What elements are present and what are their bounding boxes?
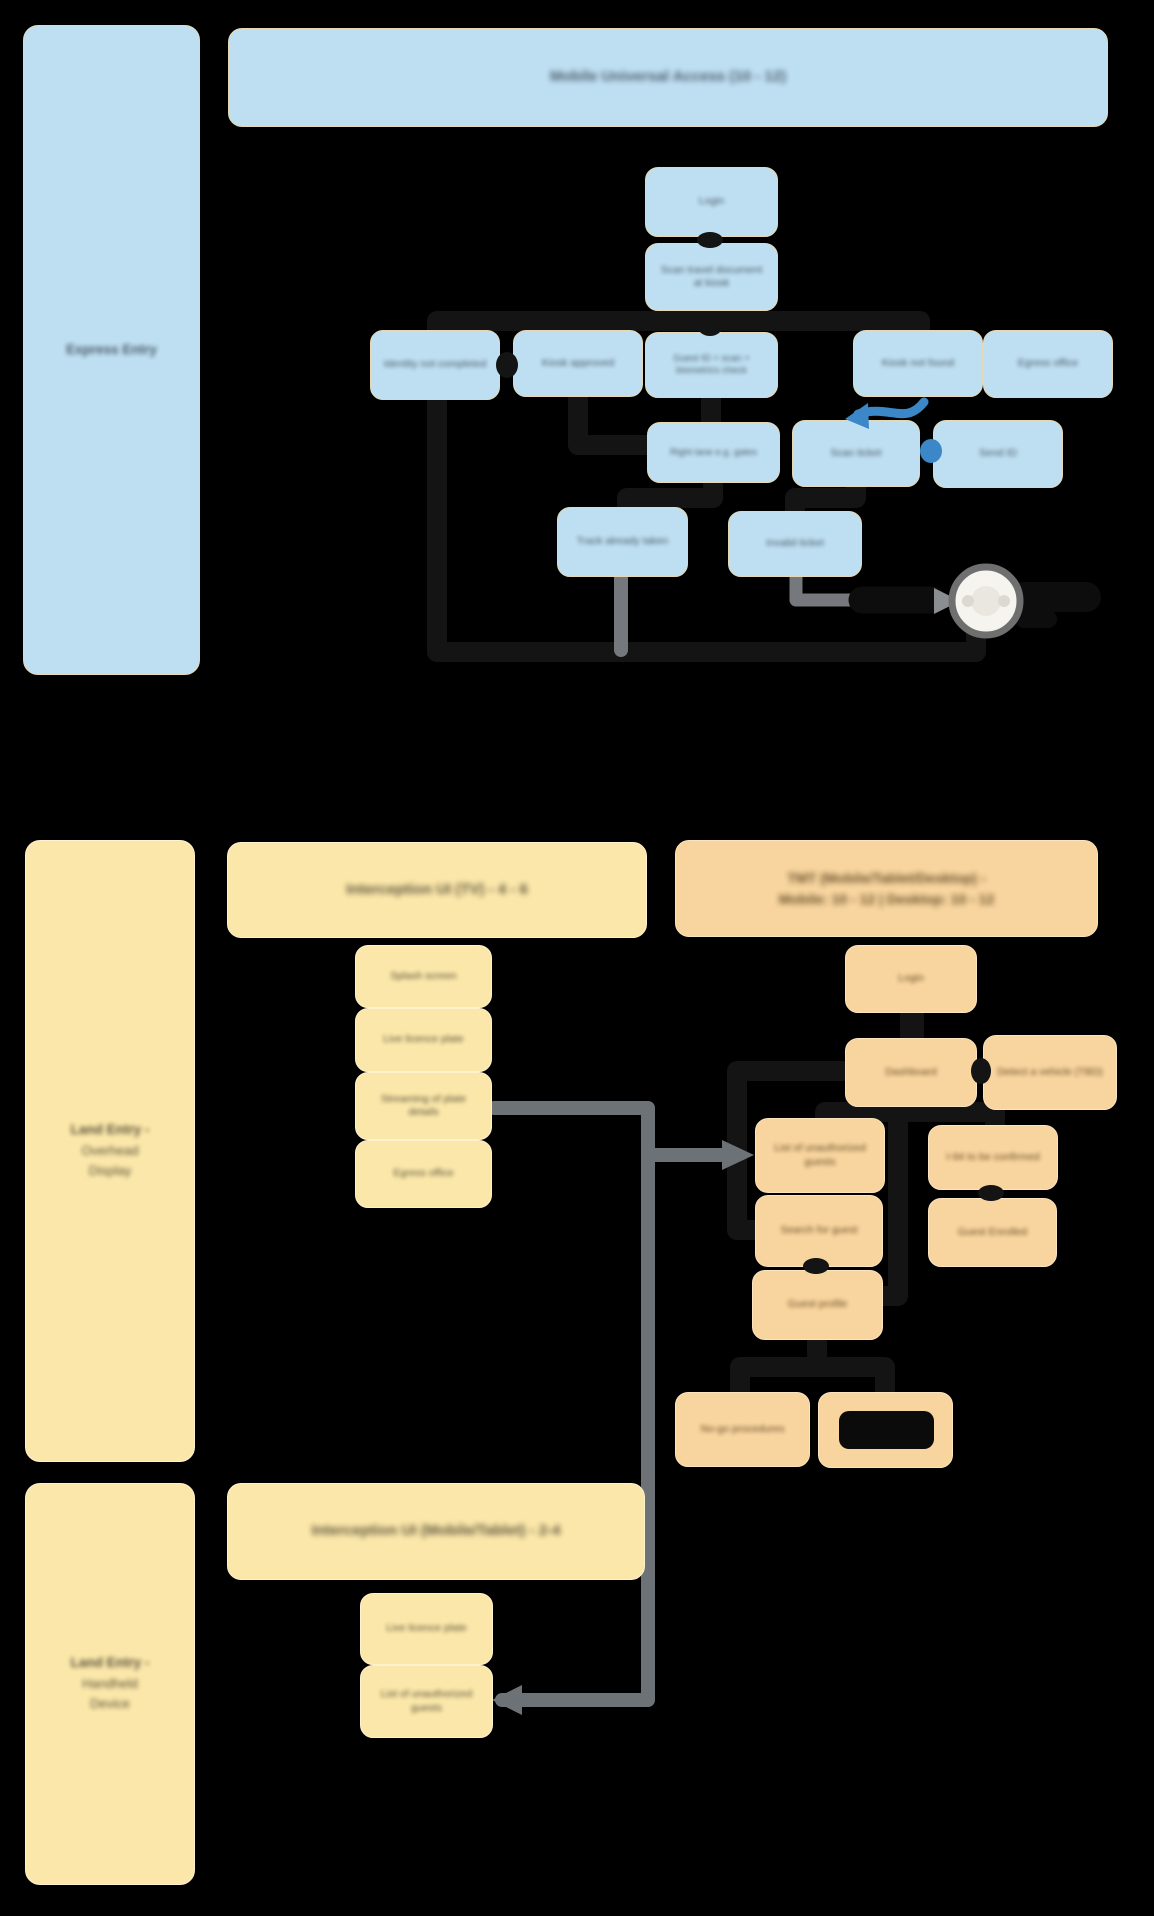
node-kiosk-not-found-label: Kiosk not found — [882, 357, 954, 370]
connector-gray-long-loop — [494, 1108, 648, 1700]
tmt-node-unauthorized-list-label: List of unauthorized guests — [770, 1142, 870, 1168]
redacted-label — [839, 1411, 934, 1449]
handheld-node-unauthorized-list[interactable]: List of unauthorized guests — [360, 1665, 493, 1738]
node-send-id[interactable]: Send ID — [933, 420, 1063, 488]
tv-node-live-plate-label: Live licence plate — [383, 1033, 464, 1046]
node-scan-document-label: Scan travel document at kiosk — [655, 264, 768, 290]
tmt-node-login-label: Login — [898, 972, 924, 985]
arrowhead-into-handheld-list — [492, 1685, 522, 1715]
node-scan-document[interactable]: Scan travel document at kiosk — [645, 243, 778, 311]
tmt-node-search-guest[interactable]: Search for guest — [755, 1195, 883, 1267]
express-header-title: Mobile Universal Access (10 - 12) — [550, 66, 786, 89]
node-guest-id[interactable]: Guest ID + scan + biometrics check — [645, 332, 778, 398]
node-identity-not-completed[interactable]: Identity not completed — [370, 330, 500, 400]
tmt-node-redacted[interactable] — [818, 1392, 953, 1468]
handheld-header-bar[interactable]: Interception UI (Mobile/Tablet) - 2-4 — [227, 1483, 645, 1580]
node-guest-id-label: Guest ID + scan + biometrics check — [655, 353, 768, 377]
tv-node-splash-label: Splash screen — [390, 970, 457, 983]
node-identity-label: Identity not completed — [384, 358, 487, 371]
node-kiosk-approved-label: Kiosk approved — [542, 357, 614, 370]
tmt-node-guest-enrolled-label: Guest Enrolled — [958, 1226, 1027, 1239]
node-track-taken-label: Track already taken — [577, 535, 669, 548]
node-kiosk-not-found[interactable]: Kiosk not found — [853, 330, 983, 397]
tv-header-title: Interception UI (TV) - 4 - 6 — [346, 879, 528, 902]
tv-node-egress-label: Egress office — [393, 1167, 454, 1180]
tv-node-streaming[interactable]: Streaming of plate details — [355, 1072, 492, 1140]
tv-node-live-plate[interactable]: Live licence plate — [355, 1008, 492, 1072]
handheld-node-live-plate[interactable]: Live licence plate — [360, 1593, 493, 1665]
node-send-id-label: Send ID — [979, 447, 1017, 460]
handheld-node-unauthorized-list-label: List of unauthorized guests — [379, 1688, 474, 1714]
arrowhead-into-unauthorized-list — [722, 1140, 754, 1170]
handheld-header-title: Interception UI (Mobile/Tablet) - 2-4 — [312, 1520, 561, 1543]
node-login-label: Login — [699, 195, 725, 208]
node-invalid-ticket[interactable]: Invalid ticket — [728, 511, 862, 577]
tmt-node-search-guest-label: Search for guest — [780, 1224, 857, 1237]
node-track-taken[interactable]: Track already taken — [557, 507, 688, 577]
end-node-detail-left — [962, 595, 974, 607]
tv-node-egress[interactable]: Egress office — [355, 1140, 492, 1208]
tmt-node-guest-profile[interactable]: Guest profile — [752, 1270, 883, 1340]
tmt-node-guest-enrolled[interactable]: Guest Enrolled — [928, 1198, 1057, 1267]
tmt-node-i94[interactable]: I-94 to be confirmed — [928, 1125, 1058, 1190]
node-right-lane-label: Right lane e.g. gates — [670, 447, 757, 459]
handheld-sidebar-subtitle: Handheld Device — [62, 1674, 158, 1714]
handheld-node-live-plate-label: Live licence plate — [386, 1622, 467, 1635]
tmt-header-line2: Mobile: 10 - 12 | Desktop: 10 - 12 — [779, 889, 995, 910]
overhead-sidebar-subtitle: Overhead Display — [62, 1141, 158, 1181]
tmt-node-no-go-label: No-go procedures — [700, 1423, 784, 1436]
section-express-entry[interactable]: Express Entry — [23, 25, 200, 675]
tmt-node-guest-profile-label: Guest profile — [788, 1298, 848, 1311]
node-egress-office-label: Egress office — [1018, 357, 1079, 370]
arrowhead-into-end-node — [934, 588, 960, 614]
node-scan-ticket[interactable]: Scan ticket — [792, 420, 920, 487]
tv-node-streaming-label: Streaming of plate details — [365, 1093, 482, 1119]
tmt-node-dashboard[interactable]: Dashboard — [845, 1038, 977, 1107]
blue-curve-kiosknotfound-to-scanticket — [858, 402, 924, 414]
tmt-node-i94-label: I-94 to be confirmed — [946, 1151, 1039, 1164]
node-right-lane[interactable]: Right lane e.g. gates — [647, 422, 780, 483]
handheld-sidebar-title: Land Entry - — [71, 1653, 150, 1674]
tmt-header-line1: TMT (Mobile/Tablet/Desktop) - — [787, 868, 985, 889]
tmt-node-no-go[interactable]: No-go procedures — [675, 1392, 810, 1467]
express-header-bar[interactable]: Mobile Universal Access (10 - 12) — [228, 28, 1108, 127]
node-kiosk-approved[interactable]: Kiosk approved — [513, 330, 643, 397]
tv-node-splash[interactable]: Splash screen — [355, 945, 492, 1008]
node-scan-ticket-label: Scan ticket — [830, 447, 881, 460]
tmt-node-login[interactable]: Login — [845, 945, 977, 1013]
end-node-icon[interactable] — [952, 567, 1020, 635]
end-node-center — [971, 586, 1001, 616]
section-land-entry-handheld[interactable]: Land Entry - Handheld Device — [25, 1483, 195, 1885]
express-sidebar-label: Express Entry — [66, 340, 157, 361]
connector-profile-split — [740, 1332, 885, 1398]
node-login[interactable]: Login — [645, 167, 778, 237]
node-egress-office[interactable]: Egress office — [983, 330, 1113, 398]
section-land-entry-overhead[interactable]: Land Entry - Overhead Display — [25, 840, 195, 1462]
end-node-ring — [952, 567, 1020, 635]
node-invalid-ticket-label: Invalid ticket — [766, 537, 824, 550]
tmt-node-detect-label: Detect a vehicle (TBD) — [997, 1066, 1103, 1079]
flow-diagram-canvas: Express Entry Mobile Universal Access (1… — [0, 0, 1154, 1916]
tmt-node-dashboard-label: Dashboard — [885, 1066, 936, 1079]
tv-header-bar[interactable]: Interception UI (TV) - 4 - 6 — [227, 842, 647, 938]
tmt-header-bar[interactable]: TMT (Mobile/Tablet/Desktop) - Mobile: 10… — [675, 840, 1098, 937]
tmt-node-detect-vehicle[interactable]: Detect a vehicle (TBD) — [983, 1035, 1117, 1110]
overhead-sidebar-title: Land Entry - — [71, 1120, 150, 1141]
tmt-node-unauthorized-list[interactable]: List of unauthorized guests — [755, 1118, 885, 1193]
end-node-detail-right — [998, 595, 1010, 607]
